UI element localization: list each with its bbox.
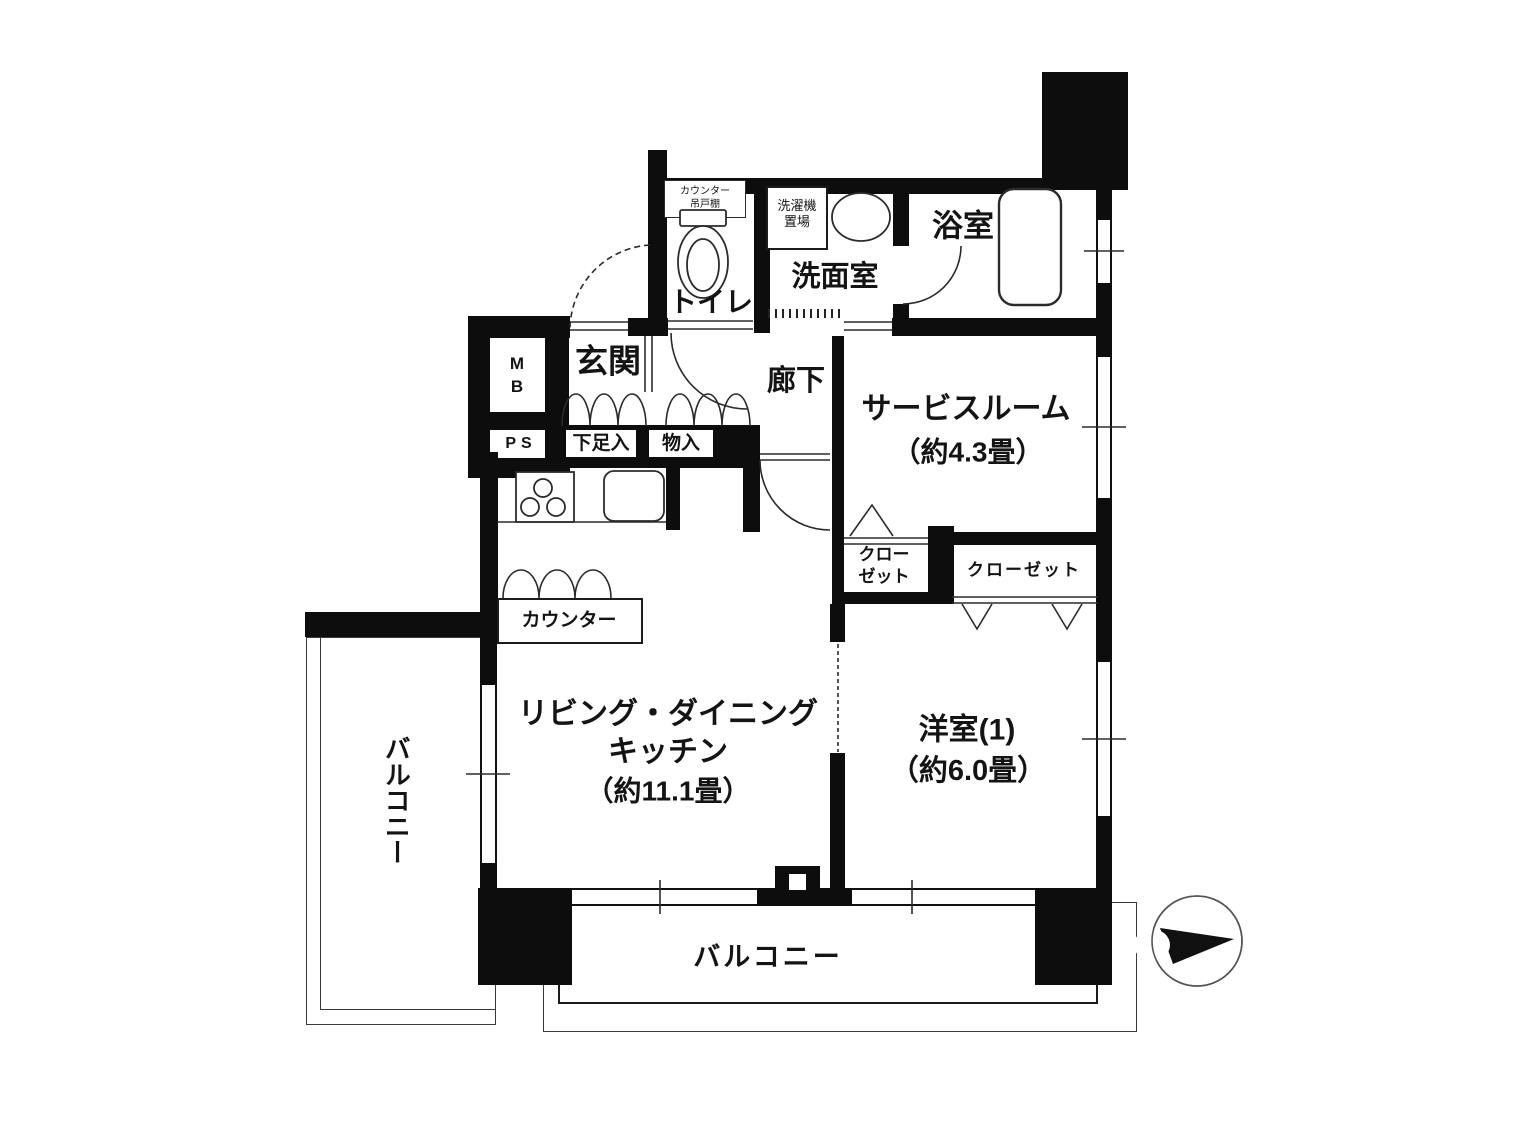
label-closet-left: クローゼット	[859, 544, 910, 588]
north-arrow-icon	[1134, 896, 1242, 986]
room-label-washroom: 洗面室	[791, 259, 878, 295]
shoe-cabinet-folding-door	[562, 394, 646, 426]
counter-folding-door	[503, 570, 611, 598]
meter-box-line2: B	[511, 377, 523, 396]
washer-space-line2: 置場	[784, 214, 810, 229]
room-size-western-room: （約6.0畳）	[890, 753, 1046, 789]
room-size-ldk: （約11.1畳）	[586, 774, 751, 809]
label-toilet-cupboard: カウンター吊戸棚	[680, 185, 730, 211]
bathroom-door-arc	[903, 246, 961, 304]
stove-burner	[521, 498, 539, 516]
label-washer-space: 洗濯機置場	[777, 198, 816, 231]
label-closet-right: クローゼット	[967, 559, 1081, 580]
toilet-door-track	[668, 321, 753, 329]
toilet-cupboard-line2: 吊戸棚	[690, 199, 720, 210]
room-label-balcony-bottom: バルコニー	[693, 941, 842, 975]
label-meter-box: MB	[510, 353, 524, 399]
room-label-western-room: 洋室(1)	[919, 711, 1016, 749]
front-door-swing-arc	[570, 245, 650, 330]
room-label-toilet: トイレ	[669, 285, 753, 320]
ldk-door-arc	[760, 460, 830, 530]
floor-plan: トイレ 洗面室 浴室 玄関 廊下 サービスルーム （約4.3畳） リビング・ダイ…	[0, 0, 1520, 1132]
closet-right-door-triangle	[1052, 604, 1082, 629]
closet-left-line2: ゼット	[859, 567, 910, 586]
toilet-cupboard-line1: カウンター	[680, 186, 730, 197]
room-label-entrance: 玄関	[575, 340, 641, 381]
room-label-service-room: サービスルーム	[861, 390, 1070, 428]
room-label-balcony-left: バルコニー	[380, 735, 413, 865]
toilet-door-arc	[671, 333, 747, 409]
kitchen-sink	[604, 471, 664, 521]
stove-burner	[534, 479, 552, 497]
toilet-bowl-inner	[687, 239, 719, 291]
label-pipe-space: PS	[505, 434, 536, 454]
label-shoe-cabinet: 下足入	[572, 432, 629, 456]
washer-space-line1: 洗濯機	[777, 198, 816, 213]
meter-box-line1: M	[510, 354, 524, 373]
label-kitchen-counter: カウンター	[521, 609, 616, 633]
room-label-ldk-line1: リビング・ダイニング	[518, 695, 818, 733]
stove-burner	[547, 498, 565, 516]
room-label-bathroom: 浴室	[932, 208, 994, 247]
closet-left-door-triangle	[850, 505, 893, 536]
toilet-tank	[680, 210, 726, 226]
closet-right-door-triangle	[962, 604, 992, 629]
closet-left-line1: クロー	[859, 545, 910, 564]
entrance-step-line	[645, 336, 652, 392]
room-label-hallway: 廊下	[767, 363, 825, 399]
ldk-doorway-track	[760, 454, 830, 460]
closet-right-track	[952, 597, 1098, 603]
bathtub	[999, 189, 1061, 305]
service-door-track	[844, 322, 892, 330]
room-size-service-room: （約4.3畳）	[893, 435, 1044, 470]
label-storage: 物入	[662, 432, 700, 456]
front-door-track	[570, 322, 628, 330]
washbasin	[832, 193, 890, 241]
room-label-ldk-line2: キッチン	[608, 733, 728, 771]
